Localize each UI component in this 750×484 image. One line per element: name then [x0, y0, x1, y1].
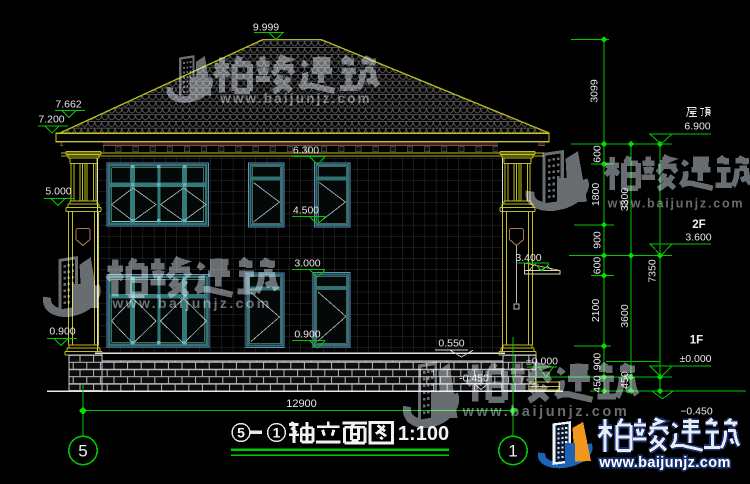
- svg-text:0.900: 0.900: [49, 326, 75, 338]
- svg-text:12900: 12900: [286, 398, 317, 410]
- svg-text:www.baijunjz.com: www.baijunjz.com: [607, 197, 745, 211]
- svg-text:600: 600: [592, 145, 604, 163]
- svg-text:7350: 7350: [647, 259, 659, 283]
- svg-text:7.200: 7.200: [38, 114, 64, 126]
- svg-text:www.baijunjz.com: www.baijunjz.com: [462, 404, 630, 420]
- svg-text:2100: 2100: [590, 299, 602, 323]
- svg-text:0.550: 0.550: [438, 338, 464, 350]
- svg-text:5: 5: [78, 442, 87, 461]
- svg-text:4.500: 4.500: [293, 205, 319, 217]
- svg-text:−0.450: −0.450: [680, 406, 713, 418]
- svg-text:3.600: 3.600: [685, 232, 711, 244]
- svg-text:www.baijunjz.com: www.baijunjz.com: [219, 91, 372, 106]
- svg-text:±0.000: ±0.000: [679, 353, 711, 365]
- svg-text:3099: 3099: [589, 79, 601, 103]
- svg-text:6.300: 6.300: [293, 145, 319, 157]
- svg-text:7.662: 7.662: [55, 99, 81, 111]
- svg-text:1: 1: [273, 425, 281, 441]
- svg-text:5: 5: [237, 425, 245, 441]
- svg-text:6.900: 6.900: [684, 121, 710, 133]
- svg-text:1: 1: [508, 442, 517, 461]
- svg-text:3.400: 3.400: [515, 252, 541, 264]
- svg-text:www.baijunjz.com: www.baijunjz.com: [111, 295, 271, 311]
- svg-text:900: 900: [592, 231, 604, 249]
- svg-text:1F: 1F: [690, 335, 703, 347]
- svg-text:3600: 3600: [619, 304, 631, 328]
- svg-text:0.900: 0.900: [294, 329, 320, 341]
- svg-text:2F: 2F: [692, 219, 705, 231]
- svg-text:5.000: 5.000: [45, 186, 71, 198]
- svg-text:1800: 1800: [590, 183, 602, 207]
- svg-text:600: 600: [592, 257, 604, 275]
- svg-text:www.baijunjz.com: www.baijunjz.com: [598, 455, 731, 471]
- svg-text:3.000: 3.000: [294, 258, 320, 270]
- svg-text:9.999: 9.999: [253, 22, 279, 34]
